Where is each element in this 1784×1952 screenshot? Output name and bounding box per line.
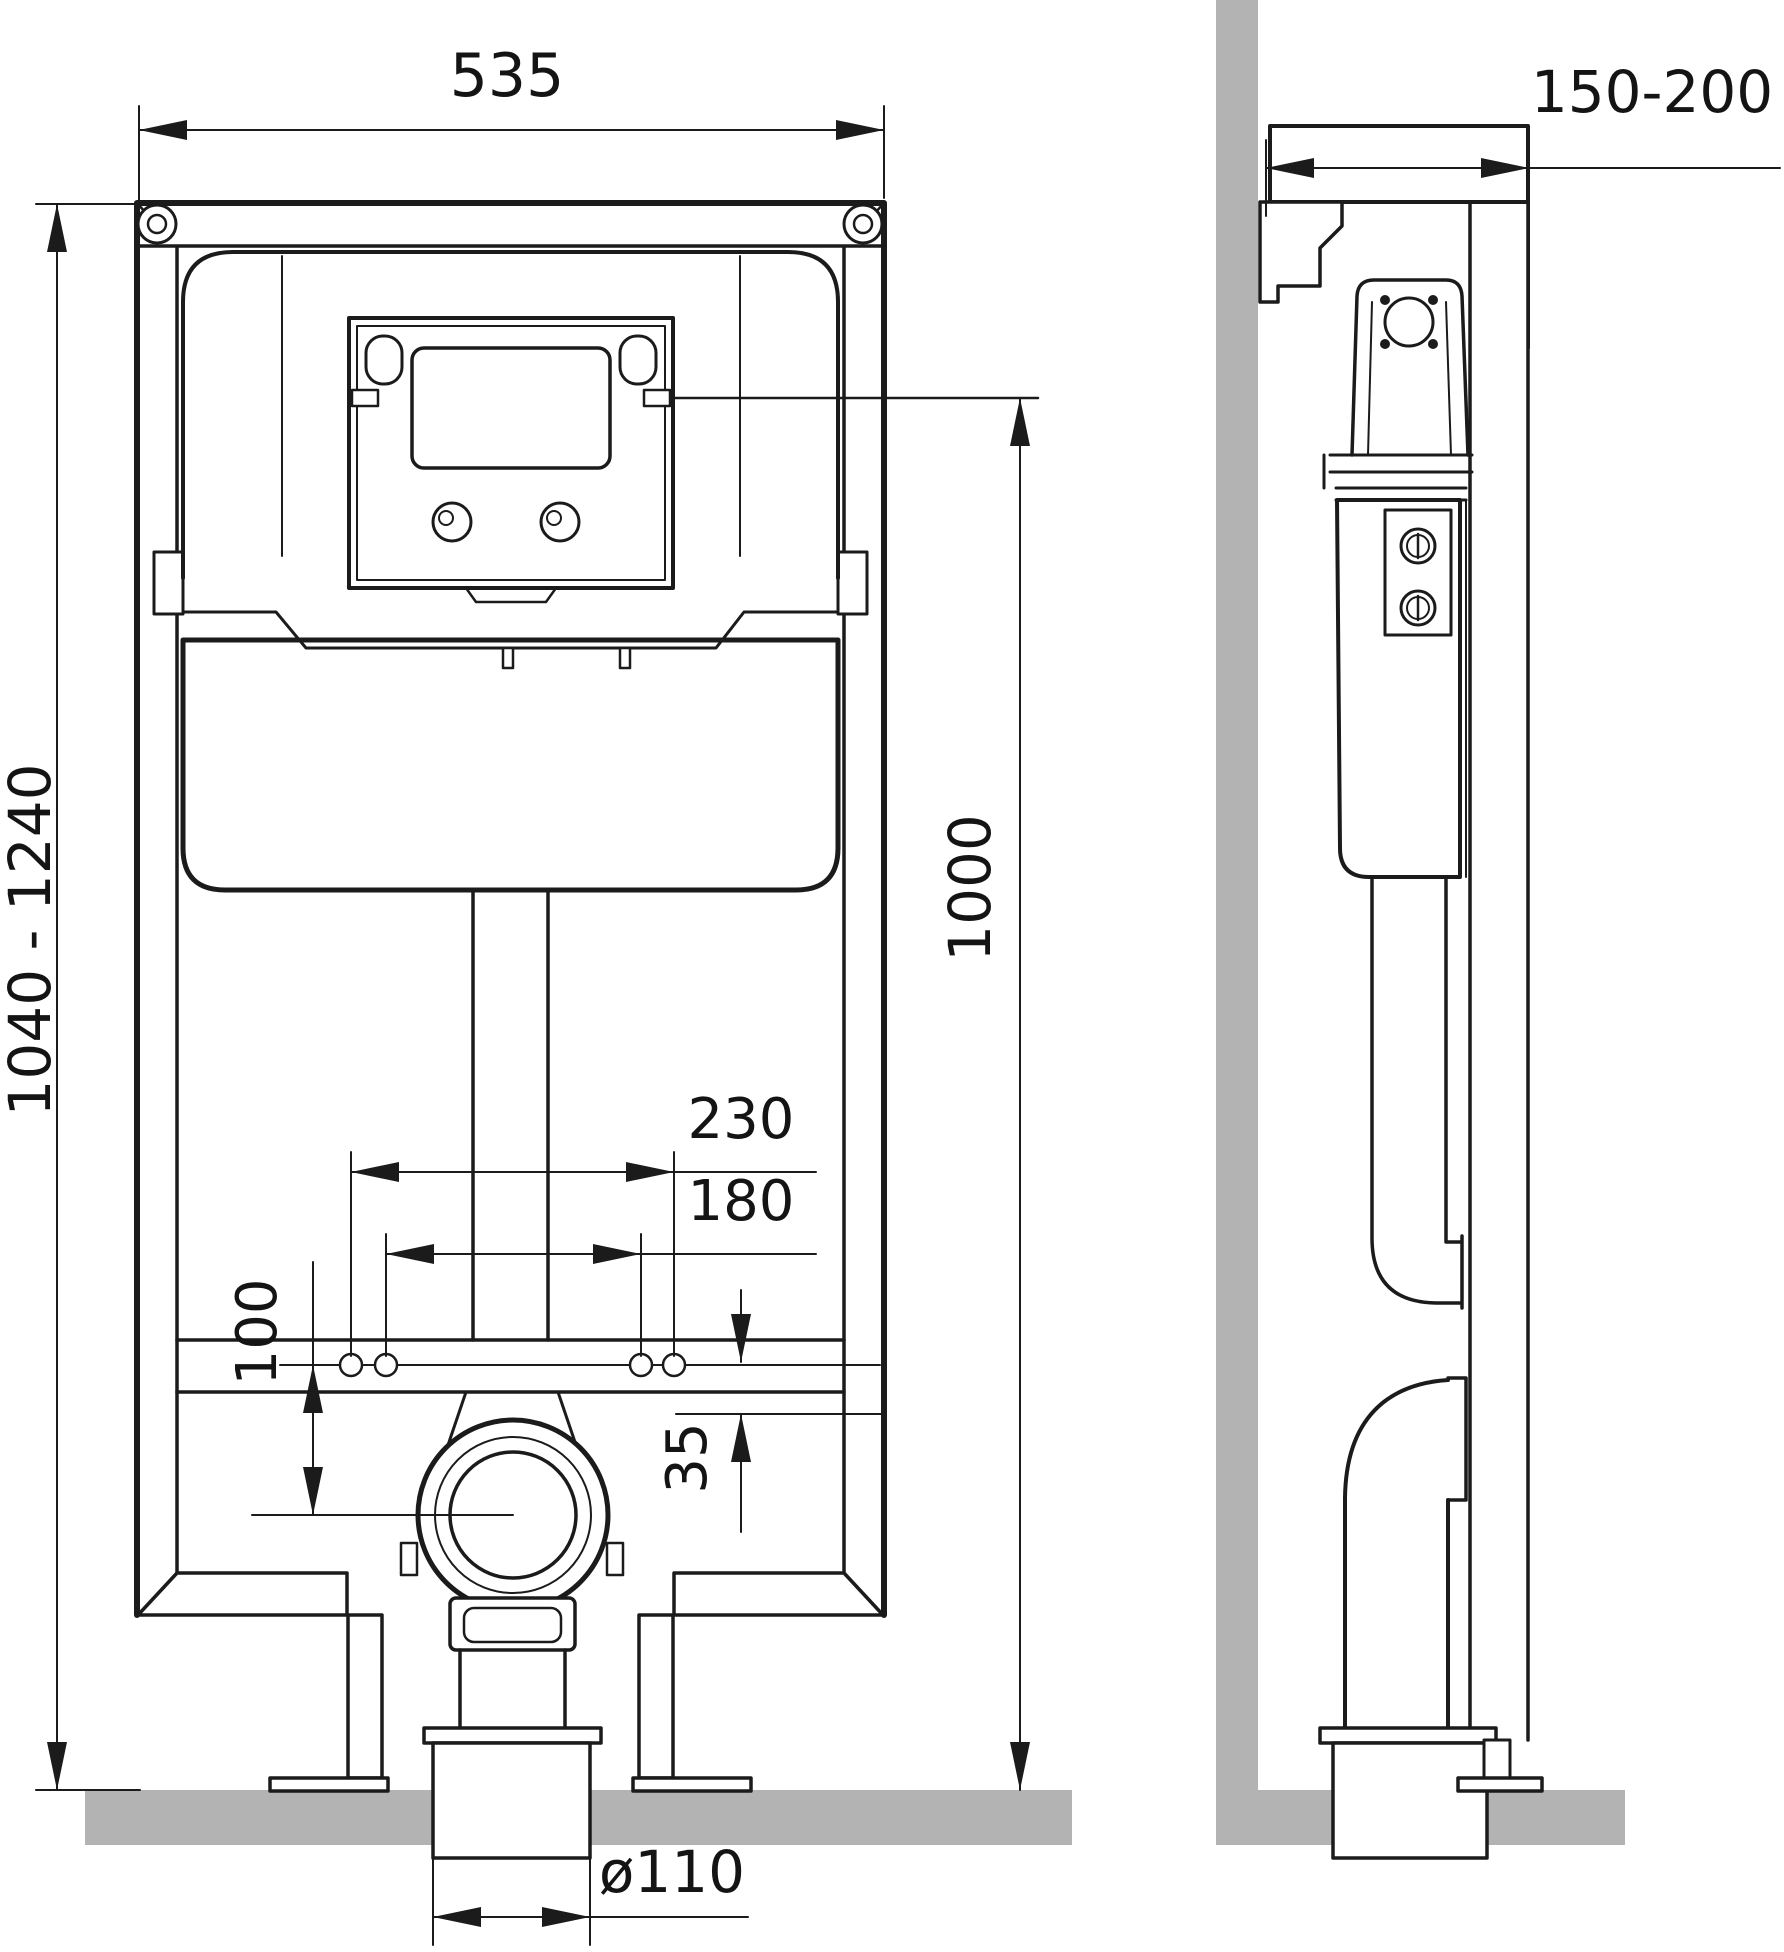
foot-right (633, 1573, 883, 1791)
dim-frame-width: 535 (139, 41, 884, 200)
flange-end-cap (154, 552, 183, 614)
dim-frame-height-range: 1040 - 1240 (0, 204, 140, 1790)
dim-fixing-inner: 180 (386, 1169, 816, 1356)
foot-leg-side (1484, 1740, 1510, 1778)
screw-icon (138, 205, 176, 243)
cistern-flange-side (1324, 455, 1472, 500)
foot-plate (270, 1778, 388, 1791)
foot-plate-side (1458, 1778, 1542, 1791)
foot-leg (639, 1615, 673, 1778)
cistern-body-side (1337, 500, 1460, 877)
fixing-hole (630, 1354, 652, 1376)
fixing-hole (340, 1354, 362, 1376)
arrowhead-left-icon (139, 120, 187, 140)
arrowhead-down-icon (47, 1742, 67, 1790)
arrowhead-down-icon (1010, 1742, 1030, 1790)
bracket-oval-hole (620, 336, 656, 384)
wall-section (1216, 0, 1258, 1790)
arrowhead-right-icon (542, 1907, 590, 1927)
flange-end-cap (838, 552, 867, 614)
arrowhead-left-icon (351, 1162, 399, 1182)
dim-label: 535 (450, 41, 565, 111)
support-dot (1380, 295, 1390, 305)
arrowhead-left-icon (433, 1907, 481, 1927)
drain-bend-side (1345, 1380, 1448, 1728)
dim-label: 100 (225, 1279, 290, 1386)
dim-label: 150-200 (1531, 58, 1773, 126)
fixing-hole (375, 1354, 397, 1376)
installation-frame-drawing: 535 1040 - 1240 1000 230 180 1 (0, 0, 1784, 1952)
foot-bracket (674, 1573, 883, 1615)
dim-label: 35 (655, 1422, 720, 1493)
dim-label: 230 (688, 1087, 795, 1152)
bracket-window (412, 348, 610, 468)
fixing-hole (663, 1354, 685, 1376)
drain-socket-flange (424, 1728, 601, 1743)
arrowhead-down-icon (731, 1314, 751, 1362)
front-view (137, 203, 884, 1858)
drain-elbow (401, 1392, 623, 1728)
arrowhead-up-icon (303, 1365, 323, 1413)
drain-socket-side (1333, 1743, 1487, 1858)
arrowhead-right-icon (593, 1244, 641, 1264)
outlet-pipe (460, 1650, 565, 1728)
arrowhead-up-icon (731, 1414, 751, 1462)
drain-connector-side (1448, 1378, 1466, 1500)
bracket-oval-hole (366, 336, 402, 384)
lid-tab (620, 648, 630, 668)
frame-rail-side (1470, 202, 1528, 1740)
flush-plate-bracket (349, 318, 673, 602)
screw-icon (844, 205, 882, 243)
lid-tab (503, 648, 513, 668)
dim-label: 1040 - 1240 (0, 763, 64, 1116)
bracket-side-slot (352, 390, 378, 406)
dim-label: 180 (688, 1169, 795, 1234)
arrowhead-right-icon (836, 120, 884, 140)
arrowhead-left-icon (386, 1244, 434, 1264)
support-dot (1428, 339, 1438, 349)
arrowhead-right-icon (626, 1162, 674, 1182)
arrowhead-up-icon (47, 204, 67, 252)
dim-rail-offset: 35 (655, 1290, 884, 1532)
wall-bracket (1260, 202, 1342, 302)
arrowhead-up-icon (1010, 398, 1030, 446)
foot-bracket (138, 1573, 347, 1615)
bracket-bottom-tab (466, 588, 556, 602)
dim-label: 1000 (936, 814, 1004, 962)
foot-leg (348, 1615, 382, 1778)
dim-label: ø110 (599, 1838, 745, 1906)
bracket-side-slot (644, 390, 670, 406)
cistern-tank-body (183, 640, 838, 890)
extension-lines (139, 106, 884, 200)
flush-bend-side (1372, 877, 1462, 1308)
drain-socket-flange-side (1320, 1728, 1496, 1743)
elbow-clamp (607, 1543, 623, 1575)
technical-drawing-page: 535 1040 - 1240 1000 230 180 1 (0, 0, 1784, 1952)
drain-socket (433, 1743, 590, 1858)
support-dot (1428, 295, 1438, 305)
foot-plate (633, 1778, 751, 1791)
elbow-clamp (401, 1543, 417, 1575)
arrowhead-down-icon (303, 1467, 323, 1515)
extension-lines (433, 1858, 590, 1945)
flush-pipe (473, 890, 548, 1340)
support-dot (1380, 339, 1390, 349)
side-view (1260, 126, 1542, 1858)
foot-left (138, 1573, 388, 1791)
